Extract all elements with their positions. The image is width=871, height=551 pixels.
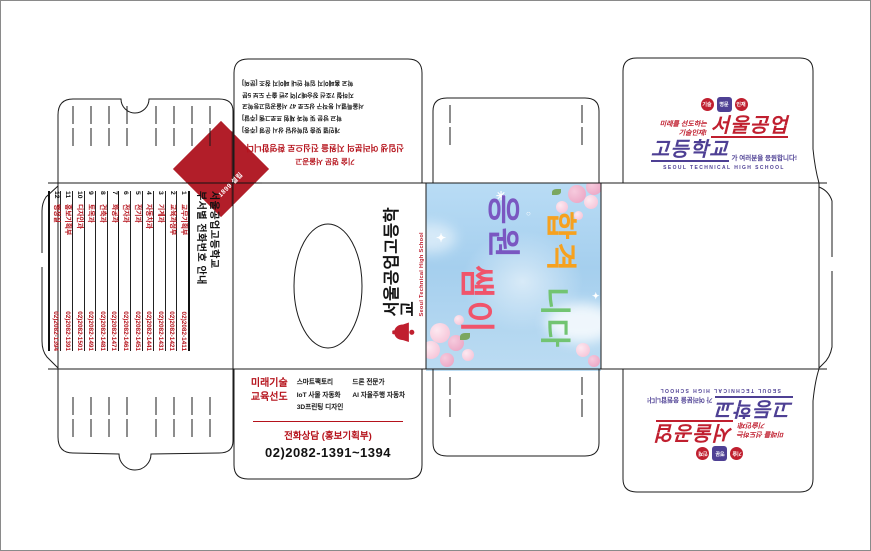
row-phone: 02)2082-1481: [98, 311, 104, 351]
row-number: 3: [156, 191, 163, 204]
logo-tagline: 미래를 선도하는 기술인재!: [660, 121, 707, 138]
table-row: 9토목과02)2082-1491: [84, 191, 96, 351]
sparkle-icon: ✦: [592, 291, 600, 302]
logo-badges: 기술 명문 인재: [697, 446, 744, 461]
row-phone: 02)2082-1391: [64, 311, 70, 351]
blossom: [440, 353, 454, 367]
leaf: [552, 189, 561, 195]
sparkle-icon: ○: [526, 209, 531, 218]
logo-badges: 기술 명문 인재: [701, 97, 748, 112]
cheer-word-pink: 쌤이: [458, 265, 493, 335]
row-dept: 화공과: [110, 204, 117, 311]
row-dept: 전기과: [133, 204, 140, 311]
row-number: 12: [52, 191, 59, 204]
school-name-text: 서울공업고등학교 Seoul Technical High School: [384, 194, 425, 317]
row-dept: 행정실: [52, 204, 59, 311]
logo-big-purple: 고등학교: [651, 139, 729, 162]
program-col-2: 드론 전문가 AI 자율주행 자동차: [352, 377, 405, 402]
black-line: 학교 방문 및 학과 체험 프로그램 [주말]: [242, 111, 408, 123]
print-panel: ✦ ✳ ○ ○ ✳ ✦ 응원 쌤이 합격 니다: [426, 183, 601, 371]
contact-title: 전화상담 (홍보기획부): [234, 428, 422, 442]
department-phone-table: 서울공업고등학교 부서별 전화번호 안내 1교무기획부02)2082-1411 …: [58, 191, 219, 352]
red-line: 기술 명문 서울공고: [242, 156, 408, 167]
row-phone: 02)2082-1421: [168, 311, 174, 351]
logo-big-red: 서울공업: [711, 115, 789, 138]
row-dept: 홍보기획부: [63, 204, 70, 311]
row-dept: 기계과: [156, 204, 163, 311]
row-dept: 자동차과: [145, 204, 152, 311]
row-dept: 교무기획부: [179, 204, 186, 312]
logo-line-2: 고등학교 가 여러분을 응원합니다!: [651, 139, 797, 162]
top-flap-red-lines: 기술 명문 서울공고 신입생 여러분의 지원을 진심으로 환영합니다: [242, 135, 408, 167]
cheer-word-orange: 합격: [544, 211, 575, 274]
red-line: 신입생 여러분의 지원을 진심으로 환영합니다: [242, 142, 408, 154]
badge-circle: 인재: [735, 98, 748, 111]
row-number: 9: [87, 191, 94, 204]
school-name-english: Seoul Technical High School: [419, 194, 425, 317]
oval-cutout: [294, 224, 362, 348]
black-line: 개인별 맞춤 입학상담 상시 운영 [주중]: [242, 123, 408, 135]
blossom: [576, 343, 590, 357]
logo-line-2: 고등학교 가 여러분을 응원합니다!: [647, 396, 793, 419]
logo-big-red: 서울공업: [656, 420, 734, 443]
table-row: 12행정실02)2082-1394: [50, 191, 61, 351]
blossom: [462, 349, 474, 361]
logo-tagline: 미래를 선도하는 기술인재!: [737, 420, 784, 437]
row-phone: 02)2082-1441: [145, 311, 151, 351]
row-phone: 02)2082-1471: [110, 311, 116, 351]
school-name-block: 서울공업고등학교 Seoul Technical High School: [385, 194, 423, 344]
cheer-word-green: 니다: [538, 287, 569, 350]
table-row: 7화공과02)2082-1471: [107, 191, 119, 351]
row-number: 1: [179, 191, 186, 204]
contact-phone: 02)2082-1391~1394: [234, 445, 422, 460]
row-phone: 02)2082-1461: [122, 311, 128, 351]
school-bell-icon: [392, 321, 416, 344]
row-dept: 건축과: [98, 204, 105, 311]
logo-line-1: 미래를 선도하는 기술인재! 서울공업: [656, 420, 785, 443]
blossom: [584, 195, 598, 209]
row-dept: 교육과정부: [168, 204, 175, 311]
row-phone: 02)2082-1431: [156, 311, 162, 351]
row-dept: 디자인과: [75, 204, 82, 311]
logo-tail: 가 여러분을 응원합니다!: [732, 152, 798, 162]
bottom-flap-contact: 미래기술 교육선도 스마트팩토리 IoT 사물 자동화 3D프린팅 디자인 드론…: [234, 377, 422, 460]
row-phone: 02)2082-1491: [87, 311, 93, 351]
table-row: 11홍보기획부02)2082-1391: [60, 191, 72, 351]
logo-subtitle: SEOUL TECHNICAL HIGH SCHOOL: [663, 165, 785, 171]
top-flap-notice: 기술 명문 서울공고 신입생 여러분의 지원을 진심으로 환영합니다 개인별 맞…: [242, 63, 408, 167]
row-phone: 02)2082-1394: [52, 311, 58, 351]
logo-line-1: 미래를 선도하는 기술인재! 서울공업: [660, 115, 789, 138]
program-item: 3D프린팅 디자인: [297, 402, 344, 415]
school-name-korean: 서울공업고등학교: [384, 194, 417, 317]
black-line: 서울특별시 동작구 상도로 47 서울공업고등학교: [242, 100, 408, 112]
row-number: 11: [63, 191, 70, 204]
program-item: IoT 사물 자동화: [297, 390, 344, 403]
table-row: 1교무기획부02)2082-1411: [176, 191, 188, 351]
row-phone: 02)2082-1451: [133, 311, 139, 351]
cheer-word-purple: 응원: [487, 194, 520, 261]
badge-square: 명문: [717, 97, 732, 112]
logo-tail: 가 여러분을 응원합니다!: [647, 396, 713, 406]
row-number: 10: [75, 191, 82, 204]
table-row: 10디자인과02)2082-1501: [72, 191, 84, 351]
logo-big-purple: 고등학교: [715, 396, 793, 419]
highlight-block: 미래기술 교육선도: [251, 377, 288, 404]
top-flap-black-lines: 개인별 맞춤 입학상담 상시 운영 [주중] 학교 방문 및 학과 체험 프로그…: [242, 76, 408, 135]
table-row: 8건축과02)2082-1481: [95, 191, 107, 351]
table-row: 3기계과02)2082-1431: [153, 191, 165, 351]
highlight-line: 미래기술: [251, 377, 288, 391]
row-phone: 02)2082-1411: [180, 312, 186, 351]
row-phone: 02)2082-1501: [75, 311, 81, 351]
badge-circle: 기술: [731, 447, 744, 460]
highlight-line: 교육선도: [251, 391, 288, 405]
dieline-canvas: ✦ ✳ ○ ○ ✳ ✦ 응원 쌤이 합격 니다 1899 설립: [0, 0, 871, 551]
black-line: 지하철 7호선 장승배기역 2번 출구 도보 5분: [242, 88, 408, 100]
black-line: 학교 홈페이지 입학 안내 페이지 참조 [문의]: [242, 76, 408, 88]
table-row: 4자동차과02)2082-1441: [142, 191, 154, 351]
row-number: 7: [110, 191, 117, 204]
table-title-line2: 부서별 전화번호 안내: [194, 191, 207, 351]
blossom: [588, 355, 600, 367]
table-row: 5전기과02)2082-1451: [130, 191, 142, 351]
program-row: 미래기술 교육선도 스마트팩토리 IoT 사물 자동화 3D프린팅 디자인 드론…: [234, 377, 422, 415]
tagline-line: 미래를 선도하는: [737, 430, 784, 437]
table-body: 1교무기획부02)2082-1411 2교육과정부02)2082-1421 3기…: [48, 191, 190, 351]
program-col-1: 스마트팩토리 IoT 사물 자동화 3D프린팅 디자인: [297, 377, 344, 415]
program-item: 스마트팩토리: [297, 377, 344, 390]
table-row: 6전자과02)2082-1461: [118, 191, 130, 351]
row-number: 4: [145, 191, 152, 204]
badge-circle: 기술: [701, 98, 714, 111]
school-logo-top: 기술 명문 인재 미래를 선도하는 기술인재! 서울공업 고등학교 가 여러분을…: [639, 97, 809, 189]
tagline-line: 미래를 선도하는: [660, 121, 707, 128]
row-number: 8: [98, 191, 105, 204]
badge-circle: 인재: [697, 447, 710, 460]
tagline-line: 기술인재!: [679, 130, 707, 137]
school-logo-bottom: 기술 명문 인재 미래를 선도하는 기술인재! 서울공업 고등학교 가 여러분을…: [635, 369, 805, 461]
red-divider: [253, 421, 403, 423]
blossom: [586, 183, 601, 195]
table-title-line1: 서울공업고등학교: [207, 191, 220, 351]
row-dept: 전자과: [121, 204, 128, 311]
row-dept: 토목과: [87, 204, 94, 311]
program-item: AI 자율주행 자동차: [352, 390, 405, 403]
table-title: 서울공업고등학교 부서별 전화번호 안내: [194, 191, 219, 351]
row-number: 6: [121, 191, 128, 204]
blossom: [426, 341, 440, 359]
logo-subtitle: SEOUL TECHNICAL HIGH SCHOOL: [659, 387, 781, 393]
row-number: 2: [168, 191, 175, 204]
badge-square: 명문: [713, 446, 728, 461]
blossom: [430, 323, 450, 343]
program-item: 드론 전문가: [352, 377, 405, 390]
row-number: 5: [133, 191, 140, 204]
sparkle-icon: ✦: [436, 231, 446, 245]
tagline-line: 기술인재!: [737, 421, 765, 428]
table-row: 2교육과정부02)2082-1421: [165, 191, 177, 351]
